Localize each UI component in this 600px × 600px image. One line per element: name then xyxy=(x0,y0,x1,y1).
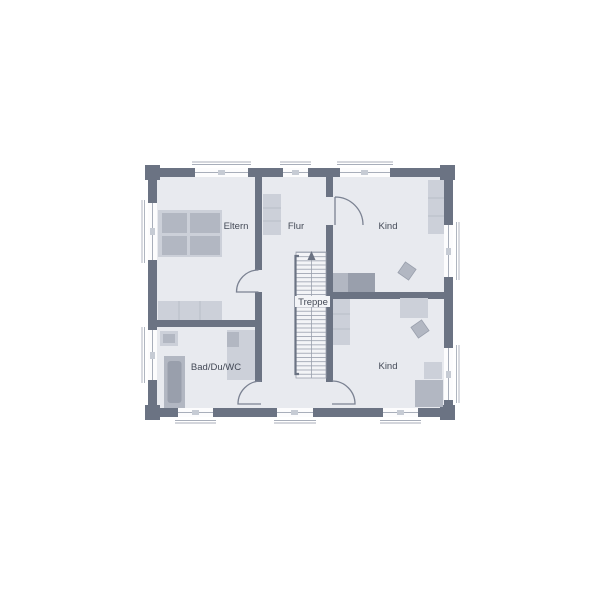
wall-segment xyxy=(308,168,340,177)
wardrobe xyxy=(428,180,444,234)
window xyxy=(192,162,251,177)
double-bed xyxy=(158,210,222,257)
wall-segment xyxy=(333,292,444,299)
bathtub xyxy=(164,356,185,408)
wall-segment xyxy=(255,177,262,270)
room-label-bad: Bad/Du/WC xyxy=(191,362,241,373)
wall-segment xyxy=(255,292,262,382)
window xyxy=(274,408,316,423)
room-label-kind-bottom: Kind xyxy=(378,361,397,372)
window xyxy=(444,222,459,280)
wall-segment xyxy=(148,380,157,417)
wall-segment xyxy=(157,320,260,327)
staircase xyxy=(296,251,327,378)
wall-segment xyxy=(444,168,453,225)
window xyxy=(142,200,157,263)
wall-segment xyxy=(148,168,157,203)
wardrobe xyxy=(333,299,350,345)
wall-segment xyxy=(326,177,333,197)
wall-segment xyxy=(390,168,453,177)
desk xyxy=(333,273,375,292)
window xyxy=(380,408,421,423)
wall-segment xyxy=(444,277,453,348)
window xyxy=(175,408,216,423)
wall-segment xyxy=(213,408,277,417)
room-label-treppe: Treppe xyxy=(298,297,328,308)
wardrobe xyxy=(158,301,222,320)
window xyxy=(444,345,459,403)
wall-segment xyxy=(313,408,383,417)
washbasin xyxy=(160,331,178,346)
window xyxy=(337,162,393,177)
hall-cabinet xyxy=(263,194,281,235)
wall-segment xyxy=(148,260,157,330)
window xyxy=(142,327,157,383)
wall-segment xyxy=(444,400,453,417)
floor-plan: Eltern Flur Kind Treppe Bad/Du/WC Kind xyxy=(0,0,600,600)
wall-segment xyxy=(248,168,283,177)
room-label-kind-top: Kind xyxy=(378,221,397,232)
room-label-eltern: Eltern xyxy=(224,221,249,232)
window xyxy=(280,162,311,177)
stair-treads xyxy=(296,252,326,378)
room-label-flur: Flur xyxy=(288,221,304,232)
desk xyxy=(400,298,428,318)
